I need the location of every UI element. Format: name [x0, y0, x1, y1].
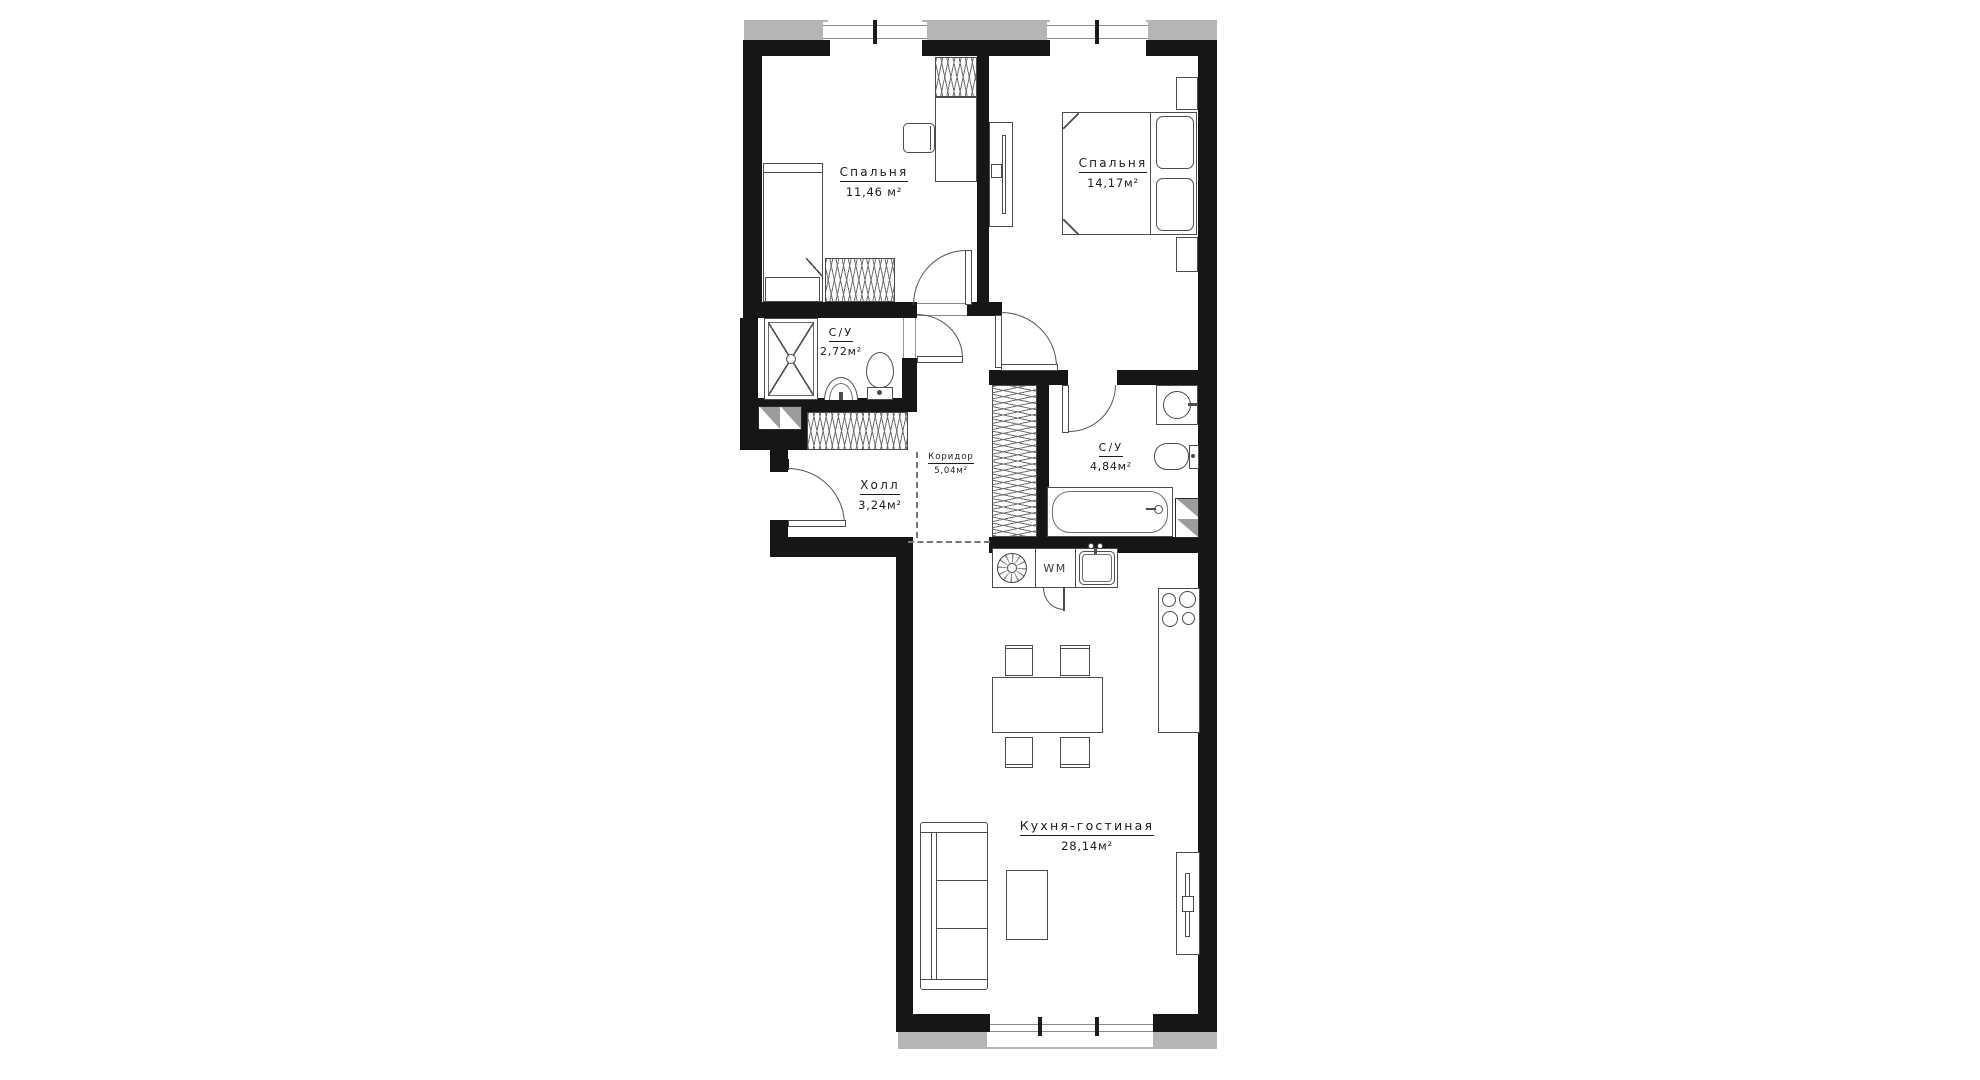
- entrance-door-leaf: [788, 520, 846, 527]
- washer-drum-center: [1007, 563, 1017, 573]
- room-label-bathroom-1: С/У 2,72м²: [808, 326, 874, 358]
- facade-pier: [898, 1032, 987, 1047]
- room-name: Кухня-гостиная: [1020, 818, 1155, 836]
- tv-mount: [991, 164, 1002, 178]
- room-name: Коридор: [928, 452, 974, 464]
- cabinet-door-leaf: [1063, 588, 1065, 611]
- wall: [743, 40, 762, 318]
- toilet-flush-button: [877, 390, 882, 395]
- window-mullion: [1095, 20, 1099, 44]
- blanket-fold-icon: [1063, 113, 1079, 129]
- bedroom1-door-leaf: [965, 250, 972, 305]
- bed-footboard: [765, 277, 820, 302]
- window-frame-line: [990, 1024, 1153, 1025]
- chair-back-line: [1005, 648, 1033, 649]
- window-frame-line: [990, 1031, 1153, 1032]
- facade-pier: [1146, 20, 1217, 40]
- wall: [1117, 370, 1203, 385]
- vent-shaft-icon: [1175, 498, 1199, 538]
- bedroom2-door-leaf: [1001, 364, 1058, 371]
- kitchen-sink-inner: [1082, 554, 1112, 582]
- coffee-table-icon: [1006, 870, 1048, 940]
- vent-triangle: [760, 407, 780, 429]
- counter-right: [1158, 588, 1200, 733]
- toilet-icon: [1154, 443, 1189, 470]
- facade-pier: [1153, 1032, 1217, 1047]
- window-mullion: [873, 20, 877, 44]
- chair-back-line: [930, 126, 931, 150]
- room-name: С/У: [1099, 441, 1124, 457]
- dining-table-icon: [992, 677, 1103, 733]
- desk-icon: [935, 97, 977, 182]
- wall: [740, 318, 758, 410]
- hob-burners-icon: [1162, 611, 1178, 627]
- vent-triangle: [781, 407, 801, 429]
- room-label-bathroom-2: С/У 4,84м²: [1076, 441, 1146, 473]
- bathtub-inner: [1052, 491, 1168, 533]
- toilet-flush-button: [1191, 454, 1195, 458]
- room-area: 4,84м²: [1090, 460, 1132, 473]
- sink-faucet-stem: [1094, 548, 1097, 554]
- room-name: Спальня: [1079, 156, 1148, 173]
- open-boundary-dashed: [916, 452, 918, 538]
- room-name: Холл: [860, 478, 900, 495]
- vent-triangle: [1177, 519, 1198, 537]
- sofa-cushion-line: [936, 880, 988, 881]
- tv-mount: [1182, 896, 1194, 912]
- wall: [896, 1014, 990, 1032]
- bedroom1-door-swing-icon: [913, 250, 966, 305]
- room-name: С/У: [829, 326, 854, 342]
- chair-icon: [1005, 645, 1033, 676]
- floor-plan: WM Спальня 11,46 м² Спальня 14,17м² С/У …: [0, 0, 1980, 1080]
- sofa-armrest-line: [920, 832, 988, 833]
- wall: [967, 302, 1002, 316]
- wall: [896, 555, 913, 1016]
- wall-bedroom-separator: [977, 56, 989, 306]
- facade-pier: [922, 20, 1050, 40]
- room-label-bedroom-1: Спальня 11,46 м²: [814, 165, 934, 199]
- counter-divider: [1075, 548, 1076, 588]
- wall: [758, 302, 917, 318]
- wall: [1198, 40, 1217, 1032]
- sofa-back-line: [936, 832, 937, 980]
- room-label-kitchen-living: Кухня-гостиная 28,14м²: [1017, 818, 1157, 853]
- hob-burners-icon: [1182, 612, 1195, 625]
- nightstand-icon: [1176, 77, 1198, 110]
- room-area: 14,17м²: [1087, 176, 1139, 190]
- wardrobe-hatch-icon: [992, 385, 1037, 537]
- room-label-corridor: Коридор 5,04м²: [921, 452, 981, 476]
- wall: [989, 370, 1068, 385]
- vent-triangle: [1177, 499, 1198, 517]
- bedroom2-door-swing-icon: [1001, 312, 1057, 367]
- hob-burners-icon: [1162, 593, 1176, 607]
- nightstand-icon: [1176, 237, 1198, 272]
- bathroom1-door-swing-icon: [917, 314, 963, 358]
- room-name: Спальня: [840, 165, 909, 182]
- dresser-hatch-icon: [935, 57, 977, 97]
- blanket-fold-icon: [1063, 219, 1079, 235]
- bathroom2-door-swing-icon: [1069, 385, 1116, 432]
- bathroom1-door-leaf: [917, 356, 963, 363]
- bathroom2-door-leaf: [1062, 385, 1069, 433]
- entrance-door-swing-icon: [788, 468, 845, 525]
- cabinet-door-swing-icon: [1043, 588, 1064, 610]
- bathtub-faucet-spout: [1146, 508, 1156, 510]
- tv-icon: [1002, 135, 1006, 214]
- facade-sill-line: [898, 1047, 1217, 1049]
- wardrobe-hatch-icon: [825, 258, 895, 302]
- basin-faucet: [839, 392, 843, 400]
- window-mullion: [1095, 1017, 1099, 1036]
- chair-back-line: [1060, 764, 1090, 765]
- wall: [922, 40, 1050, 56]
- hob-burners-icon: [1179, 591, 1196, 608]
- wardrobe-hatch-icon: [807, 412, 908, 450]
- shower-drain: [786, 354, 796, 364]
- sofa-cushion-line: [936, 928, 988, 929]
- sofa-back-line: [931, 832, 932, 980]
- sink-faucet-handle: [1097, 543, 1103, 549]
- facade-pier: [744, 20, 828, 40]
- sofa-armrest-line: [920, 979, 988, 980]
- window-mullion: [1038, 1017, 1042, 1036]
- room-area: 28,14м²: [1061, 839, 1113, 853]
- room-area: 2,72м²: [820, 345, 862, 358]
- room-label-bedroom-2: Спальня 14,17м²: [1053, 156, 1173, 190]
- open-boundary-dashed: [908, 541, 990, 543]
- blanket-fold-icon: [806, 258, 823, 277]
- bathroom1-door-opening: [903, 318, 916, 358]
- room-area: 5,04м²: [934, 466, 968, 476]
- chair-back-line: [1060, 648, 1090, 649]
- chair-icon: [1060, 645, 1090, 676]
- wall: [770, 537, 913, 557]
- room-label-hall: Холл 3,24м²: [845, 478, 915, 512]
- room-area: 3,24м²: [858, 498, 902, 512]
- basin-icon: [1163, 391, 1191, 419]
- vent-shaft-icon: [758, 406, 802, 430]
- basin-faucet: [1188, 403, 1198, 406]
- washing-machine-label: WM: [1035, 562, 1075, 575]
- room-area: 11,46 м²: [846, 185, 902, 199]
- chair-back-line: [1005, 764, 1033, 765]
